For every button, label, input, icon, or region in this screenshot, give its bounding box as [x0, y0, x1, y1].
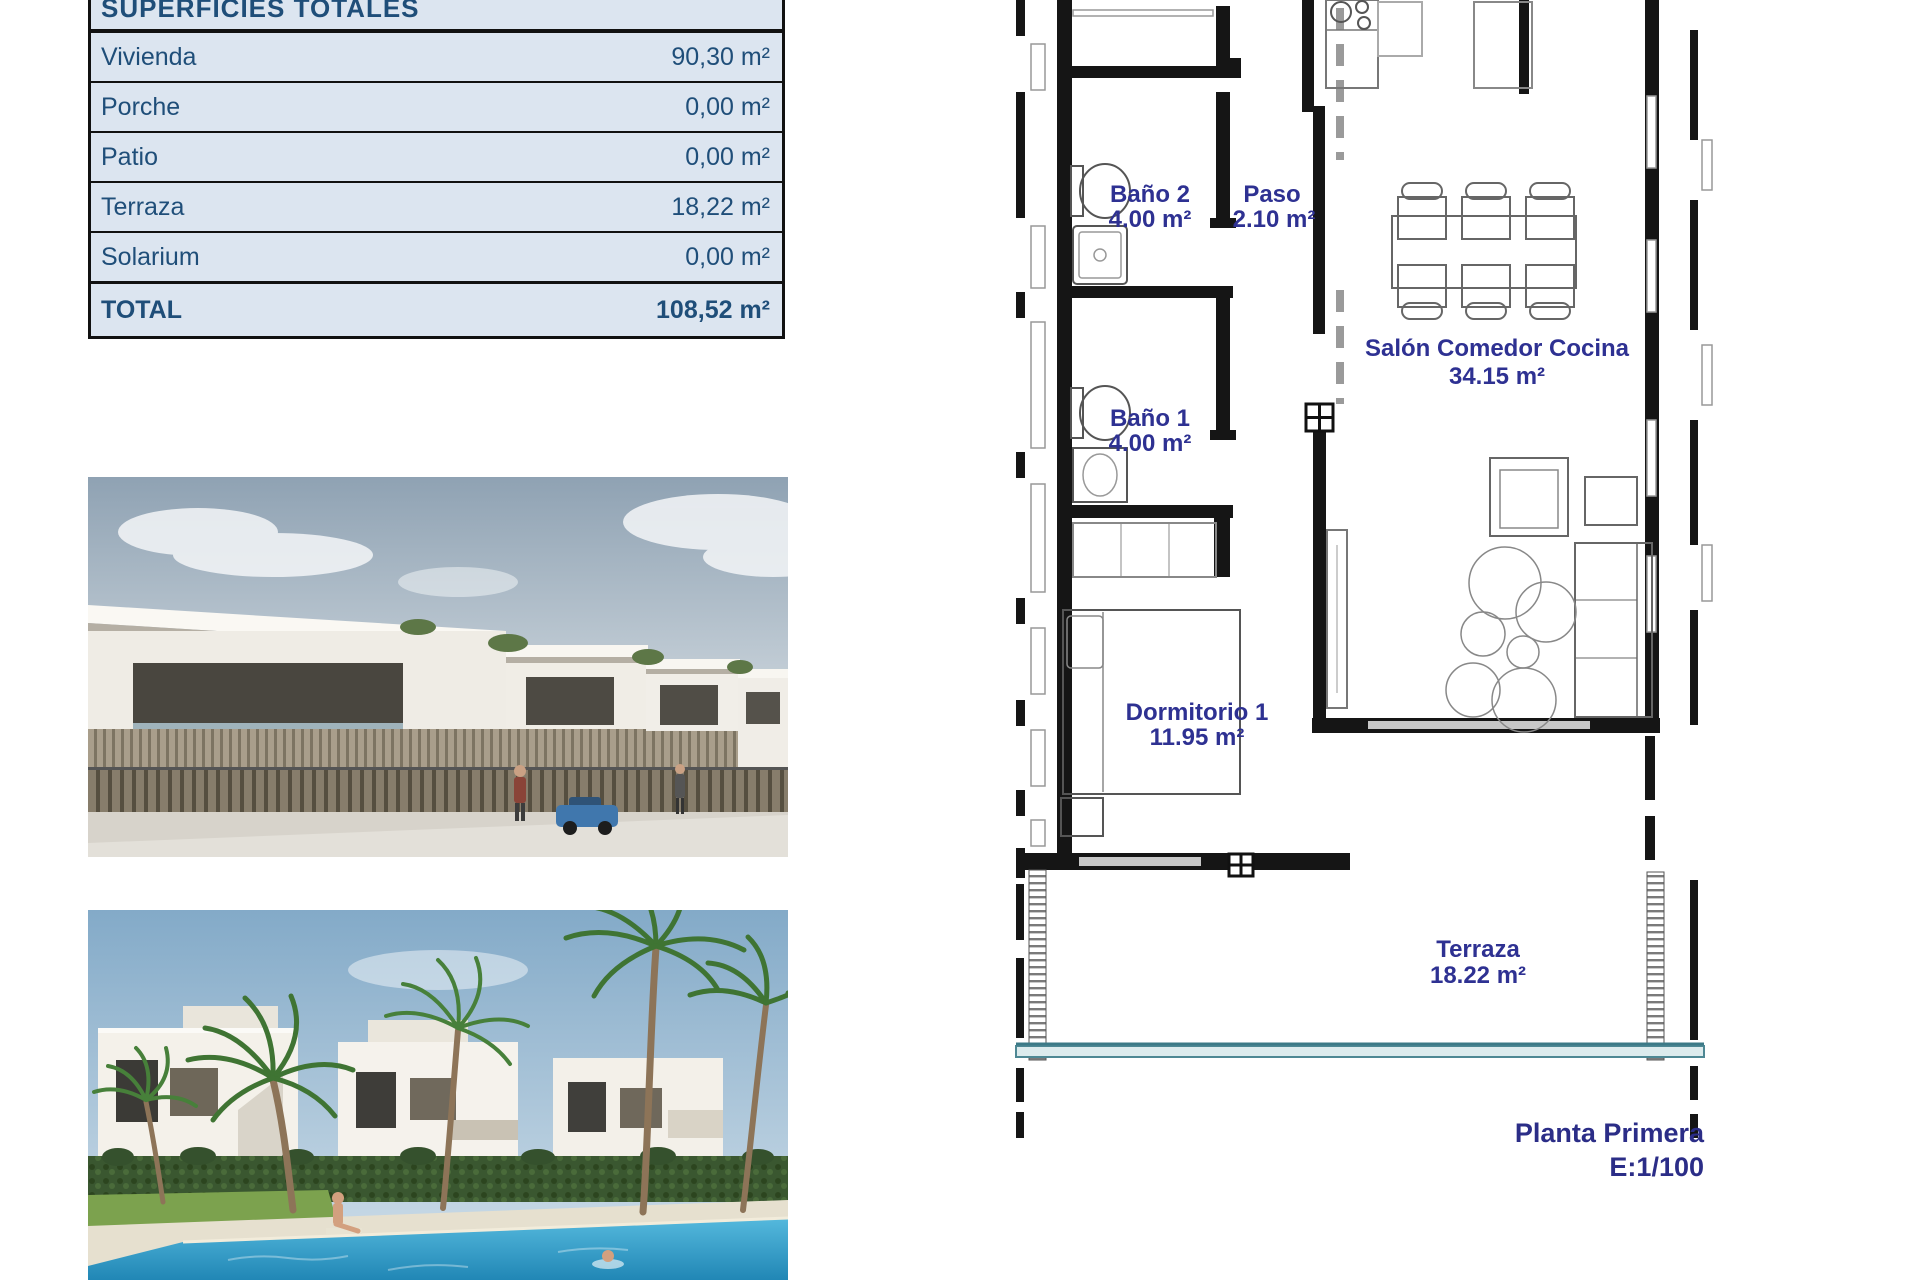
sliding-door	[1368, 721, 1590, 729]
row-label: Solarium	[101, 243, 200, 272]
room-label-terraza: Terraza	[1436, 936, 1520, 963]
terrace-wall-left	[1029, 870, 1046, 1060]
table-row: Solarium 0,00 m²	[91, 233, 782, 283]
column-marker-icon	[1229, 854, 1253, 876]
party-wall-right	[1690, 30, 1698, 1138]
row-label: Vivienda	[101, 43, 196, 72]
photo-townhouses-render	[88, 477, 788, 857]
total-label: TOTAL	[101, 296, 182, 325]
table-row: Porche 0,00 m²	[91, 83, 782, 133]
surfaces-table-title: SUPERFICIES TOTALES	[91, 0, 782, 33]
floor-plan-drawing: Baño 2 4.00 m² Paso 2.10 m² Salón Comedo…	[1000, 0, 1720, 1280]
row-label: Patio	[101, 143, 158, 172]
photo-pool-render	[88, 910, 788, 1280]
table-total-row: TOTAL 108,52 m²	[91, 283, 782, 336]
row-value: 90,30 m²	[671, 43, 770, 72]
facade-windows-left	[1031, 44, 1045, 846]
room-area-bano1: 4.00 m²	[1109, 430, 1192, 457]
plan-caption-scale: E:1/100	[1609, 1152, 1704, 1182]
bedroom-window	[1079, 857, 1201, 866]
row-value: 0,00 m²	[685, 93, 770, 122]
column-marker-icon	[1306, 404, 1333, 431]
row-value: 0,00 m²	[685, 143, 770, 172]
room-area-paso: 2.10 m²	[1233, 206, 1316, 233]
table-row: Vivienda 90,30 m²	[91, 33, 782, 83]
plan-caption-title: Planta Primera	[1515, 1118, 1705, 1148]
room-label-salon: Salón Comedor Cocina	[1365, 335, 1630, 362]
row-label: Porche	[101, 93, 180, 122]
terrace-wall-right	[1647, 872, 1664, 1060]
townhouses-illustration	[88, 477, 788, 857]
glass-balustrade	[1016, 1044, 1704, 1057]
brochure-page: SUPERFICIES TOTALES Vivienda 90,30 m² Po…	[0, 0, 1920, 1280]
plan-caption: Planta Primera E:1/100	[1515, 1118, 1705, 1182]
row-label: Terraza	[101, 193, 184, 222]
room-area-salon: 34.15 m²	[1449, 363, 1545, 390]
floor-plan: Baño 2 4.00 m² Paso 2.10 m² Salón Comedo…	[1000, 0, 1720, 1280]
room-area-dormitorio: 11.95 m²	[1150, 724, 1245, 751]
facade-windows-far-right	[1702, 140, 1712, 601]
row-value: 0,00 m²	[685, 243, 770, 272]
party-wall-left	[1016, 0, 1025, 1138]
table-row: Patio 0,00 m²	[91, 133, 782, 183]
pool-illustration	[88, 910, 788, 1280]
plant	[1446, 547, 1576, 732]
table-row: Terraza 18,22 m²	[91, 183, 782, 233]
room-label-dormitorio: Dormitorio 1	[1126, 699, 1269, 726]
total-value: 108,52 m²	[656, 296, 770, 325]
room-area-terraza: 18.22 m²	[1430, 962, 1526, 989]
room-label-paso: Paso	[1243, 181, 1300, 208]
cloud	[348, 950, 528, 990]
row-value: 18,22 m²	[671, 193, 770, 222]
surfaces-table: SUPERFICIES TOTALES Vivienda 90,30 m² Po…	[88, 0, 785, 339]
room-label-bano2: Baño 2	[1110, 181, 1190, 208]
room-label-bano1: Baño 1	[1110, 405, 1190, 432]
room-area-bano2: 4.00 m²	[1109, 206, 1192, 233]
